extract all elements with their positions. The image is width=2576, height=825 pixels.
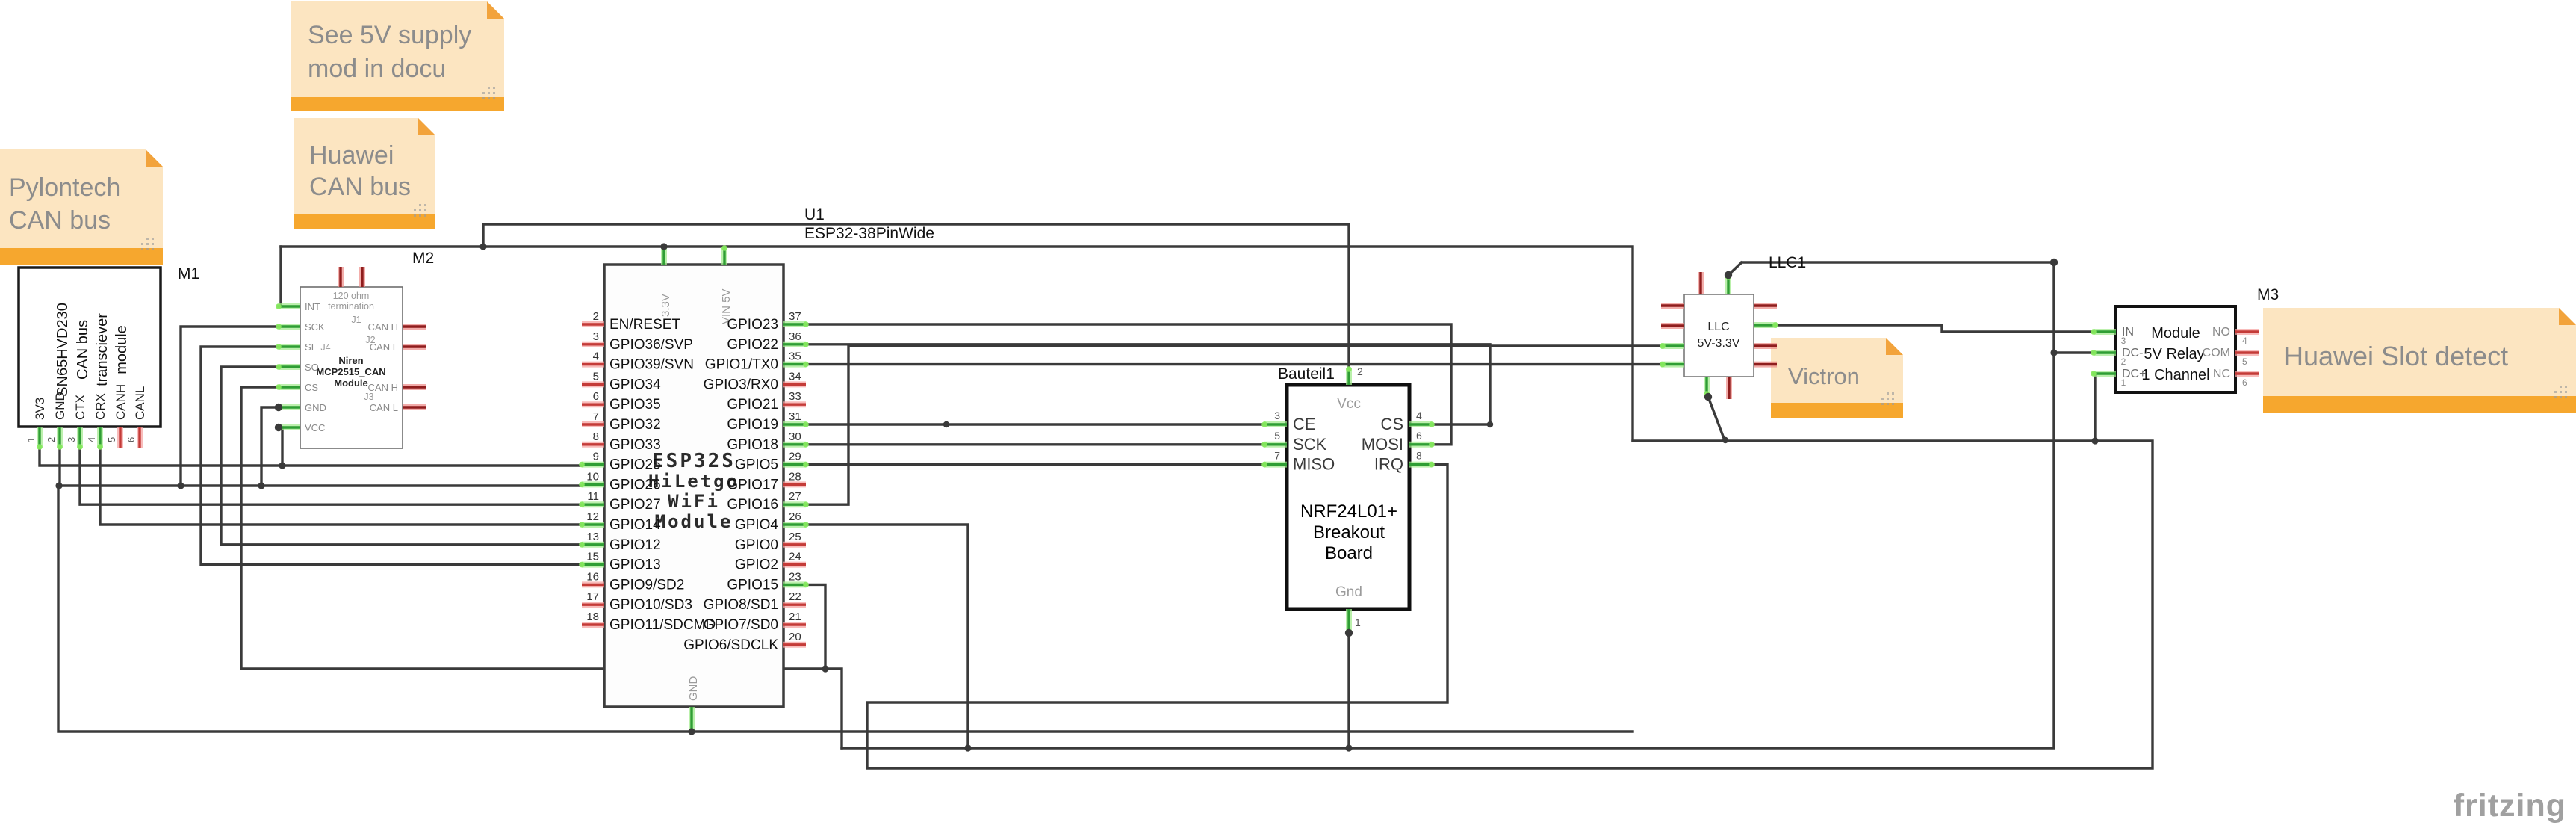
pin-tip — [37, 444, 43, 450]
note-supply[interactable]: See 5V supply mod in docu — [291, 1, 504, 111]
chip-title: WiFi — [668, 491, 720, 512]
module-m1-can-transceiver[interactable]: M1 SN65HVD230 CAN bus transciever module… — [19, 265, 199, 450]
pin-tip — [803, 342, 809, 347]
pin-label: GPIO23 — [727, 317, 778, 333]
pin-number: 34 — [789, 370, 801, 383]
grip-dot-icon — [424, 204, 426, 206]
chip-title: ESP32S — [652, 450, 736, 472]
pin-number: 7 — [593, 410, 599, 423]
pin-label: GPIO34 — [609, 377, 661, 392]
pin-number: 37 — [789, 310, 801, 323]
pin-tip — [803, 442, 809, 448]
module-body[interactable] — [1684, 294, 1754, 377]
pin-tip — [1772, 322, 1778, 328]
module-u1-esp32[interactable]: U1 ESP32-38PinWide 3.3V VIN 5V GND ESP32… — [579, 206, 934, 730]
pin-label: VCC — [305, 422, 325, 433]
grip-dot-icon — [146, 238, 149, 240]
module-ref: M3 — [2257, 286, 2279, 303]
grip-dot-icon — [2560, 386, 2562, 388]
module-title: CAN bus — [75, 320, 91, 380]
pin-label: INT — [305, 301, 320, 312]
pin-number: 1 — [25, 437, 37, 442]
grip-dot-icon — [152, 243, 154, 245]
module-title: MCP2515_CAN — [316, 366, 385, 377]
jumper-label: J1 — [351, 315, 361, 325]
grip-dot-icon — [493, 92, 495, 94]
grip-dot-icon — [493, 87, 495, 89]
pin-number: 16 — [586, 570, 599, 583]
pin-number: 26 — [789, 510, 801, 523]
pin-tip — [2091, 371, 2097, 377]
grip-dot-icon — [2565, 396, 2567, 398]
wire-llc-relay-in — [1777, 325, 2094, 332]
pin-number: 4 — [1416, 410, 1422, 421]
pin-tip — [803, 522, 809, 528]
pin-number: 22 — [789, 590, 801, 603]
grip-dot-icon — [152, 248, 154, 250]
grip-dot-icon — [1881, 398, 1884, 400]
pin-tip — [803, 501, 809, 507]
grip-dot-icon — [424, 214, 426, 217]
pin-number: 5 — [106, 437, 117, 442]
pin-tip — [276, 344, 282, 350]
note-bar — [291, 97, 504, 111]
pin-label: GPIO3/RX0 — [704, 377, 778, 392]
pin-label: GPIO21 — [727, 397, 778, 412]
grip-dot-icon — [419, 214, 421, 217]
pin-label: GPIO16 — [727, 497, 778, 513]
module-ref: LLC1 — [1769, 254, 1806, 271]
grip-dot-icon — [2565, 391, 2567, 393]
pin-number: 6 — [2242, 377, 2247, 388]
pin-label: CRX — [93, 393, 108, 420]
pin-number: 13 — [586, 531, 599, 543]
pin-label: GPIO15 — [727, 577, 778, 593]
module-title: 1 Channel — [2141, 367, 2209, 383]
module-title: Module — [334, 377, 368, 389]
pin-number: 3 — [593, 330, 599, 343]
pin-label: NO — [2212, 326, 2230, 339]
grip-dot-icon — [141, 243, 143, 245]
pin-tip — [803, 421, 809, 427]
pin-number: 9 — [593, 451, 599, 463]
note-bar — [1771, 403, 1903, 418]
grip-dot-icon — [2554, 396, 2557, 398]
termination-label: termination — [328, 301, 374, 312]
pin-tip — [803, 462, 809, 468]
pin-number: 8 — [593, 430, 599, 443]
pin-tip — [276, 324, 282, 330]
module-title: LLC — [1707, 321, 1729, 333]
pin-label: CTX — [73, 395, 87, 420]
pin-number: 6 — [593, 390, 599, 403]
module-ref: Bauteil1 — [1278, 365, 1335, 383]
pin-tip — [57, 444, 63, 450]
module-title: Module — [2151, 325, 2200, 342]
pin-tip — [276, 303, 282, 309]
wire-llc-bottom-diag — [1708, 397, 1725, 440]
grip-dot-icon — [488, 87, 490, 89]
pin-label: GPIO32 — [609, 417, 661, 433]
pin-label: DC+ — [2122, 368, 2146, 380]
pin-label: GPIO19 — [727, 417, 778, 433]
grip-dot-icon — [1892, 398, 1894, 400]
pin-tip — [97, 444, 103, 450]
pin-tip — [579, 462, 585, 468]
pin-label: SCK — [1293, 435, 1327, 454]
note-text: Huawei Slot detect — [2284, 341, 2508, 371]
pin-number: 30 — [789, 430, 801, 443]
pin-tip — [1660, 362, 1666, 368]
pin-label: GPIO27 — [609, 497, 661, 513]
module-title: module — [114, 325, 130, 374]
pin-number: 5 — [593, 370, 599, 383]
pin-tip — [1346, 366, 1352, 372]
pin-label-gnd: GND — [687, 676, 700, 702]
pin-label: GPIO4 — [735, 517, 779, 533]
pin-tip — [579, 522, 585, 528]
pin-label: GPIO18 — [727, 437, 778, 453]
pin-number: 4 — [593, 350, 599, 363]
pin-tip — [1660, 343, 1666, 349]
pin-tip — [1261, 462, 1267, 468]
pin-number: 15 — [586, 551, 599, 563]
grip-dot-icon — [414, 209, 416, 211]
chip-title: Module — [655, 511, 733, 532]
note-text: Pylontech — [9, 173, 120, 202]
module-ref: M1 — [178, 265, 199, 282]
pin-label: GPIO26 — [609, 477, 661, 492]
note-text: Huawei — [309, 141, 394, 170]
note-victron[interactable]: Victron — [1771, 338, 1903, 418]
grip-dot-icon — [2565, 386, 2567, 388]
pin-number: 28 — [789, 470, 801, 483]
grip-dot-icon — [424, 209, 426, 211]
module-title: Board — [1325, 543, 1373, 563]
pin-label: CAN L — [370, 342, 398, 353]
pin-tip — [721, 245, 727, 251]
pin-label: CANH — [114, 384, 128, 420]
pin-number: 1 — [1355, 617, 1361, 628]
note-pylontech[interactable]: Pylontech CAN bus — [0, 149, 163, 265]
pin-tip — [1261, 421, 1267, 427]
pin-number: 2 — [46, 437, 57, 442]
grip-dot-icon — [482, 97, 485, 99]
pin-number: 10 — [586, 470, 599, 483]
pin-tip — [1429, 442, 1435, 448]
pin-tip — [77, 444, 83, 450]
pin-label: GPIO10/SD3 — [609, 597, 692, 613]
pin-tip — [276, 364, 282, 370]
note-fold-icon — [1886, 338, 1903, 355]
grip-dot-icon — [488, 97, 490, 99]
wire-gpio15-loop — [806, 584, 825, 669]
pin-label-vcc: Vcc — [1337, 396, 1361, 412]
pin-label: MOSI — [1362, 435, 1403, 454]
note-text: See 5V supply — [308, 21, 471, 49]
grip-dot-icon — [1887, 392, 1889, 395]
pin-number: 5 — [2242, 356, 2247, 367]
pin-number: 29 — [789, 451, 801, 463]
pin-label: CANL — [133, 386, 147, 420]
pin-label: SO — [305, 362, 319, 373]
note-fold-icon — [418, 118, 435, 135]
pin-tip — [276, 384, 282, 390]
note-text: mod in docu — [308, 55, 446, 83]
note-fold-icon — [487, 1, 504, 19]
module-title: SN65HVD230 — [55, 303, 71, 397]
pin-label-gnd: Gnd — [1335, 584, 1362, 600]
pin-tip — [2091, 350, 2097, 356]
module-title: transciever — [94, 313, 111, 386]
module-part: ESP32-38PinWide — [804, 225, 934, 242]
note-bar — [2263, 396, 2576, 413]
pin-label: GPIO11/SDCMD — [609, 617, 716, 633]
grip-dot-icon — [1892, 403, 1894, 405]
module-title: Breakout — [1313, 522, 1385, 543]
pin-label: GND — [305, 402, 326, 413]
pin-label: CS — [1380, 415, 1403, 433]
pin-number: 12 — [586, 510, 599, 523]
grip-dot-icon — [488, 92, 490, 94]
grip-dot-icon — [419, 209, 421, 211]
pin-label: GPIO25 — [609, 457, 661, 473]
fritzing-logo: fritzing — [2454, 788, 2566, 824]
module-ref: M2 — [412, 250, 434, 267]
grip-dot-icon — [152, 238, 154, 240]
module-title: Niren — [338, 355, 363, 366]
pin-label: GPIO0 — [735, 537, 778, 553]
pin-tip — [803, 321, 809, 327]
pin-number: 4 — [86, 437, 97, 442]
pin-label: GPIO9/SD2 — [609, 577, 684, 593]
pin-number: 2 — [1357, 365, 1363, 377]
pin-label: GPIO14 — [609, 517, 661, 533]
grip-dot-icon — [146, 248, 149, 250]
grip-dot-icon — [2554, 391, 2557, 393]
pin-label: DC- — [2122, 347, 2143, 359]
note-bar — [0, 248, 163, 265]
pin-tip — [579, 482, 585, 488]
pin-number: 8 — [1416, 450, 1422, 462]
schematic-canvas: See 5V supply mod in docu Huawei CAN bus… — [0, 0, 2576, 825]
pin-number: 31 — [789, 410, 801, 423]
pin-number: 25 — [789, 531, 801, 543]
pin-number: 24 — [789, 551, 801, 563]
pin-tip — [2091, 329, 2097, 335]
wire-5v-relay-irq — [867, 441, 2153, 768]
pin-label: SI — [305, 342, 314, 353]
pin-label: GND — [53, 392, 67, 420]
pin-number: 6 — [1416, 430, 1422, 442]
pin-label: MISO — [1293, 455, 1335, 474]
pin-label: CAN H — [368, 382, 398, 393]
pin-tip — [579, 542, 585, 548]
pin-label: GPIO8/SD1 — [704, 597, 778, 613]
module-m2-mcp2515[interactable]: M2 120 ohm termination J1 J2 J4 Niren MC… — [276, 250, 434, 448]
pin-number: 18 — [586, 611, 599, 623]
pin-number: 21 — [789, 611, 801, 623]
pin-label: CAN H — [368, 321, 398, 333]
module-m3-relay[interactable]: M3 Module 5V Relay 1 Channel 3IN2DC-1DC+… — [2091, 286, 2279, 392]
pin-label-3v3: 3.3V — [659, 294, 672, 317]
wire-m1-3v3 — [40, 448, 582, 466]
pin-label: COM — [2203, 347, 2230, 359]
pin-label: GPIO35 — [609, 397, 661, 412]
pin-number: 3 — [66, 437, 77, 442]
pin-tip — [1429, 421, 1435, 427]
pin-number: 2 — [593, 310, 599, 323]
module-title: 5V Relay — [2144, 346, 2204, 362]
module-title: NRF24L01+ — [1300, 501, 1397, 522]
pin-label: CS — [305, 382, 318, 393]
pin-number: 4 — [2242, 336, 2247, 346]
pin-label: GPIO33 — [609, 437, 661, 453]
wire-m2-vcc — [279, 427, 282, 466]
grip-dot-icon — [414, 214, 416, 217]
jumper-label: J4 — [320, 342, 330, 353]
pin-number: 20 — [789, 631, 801, 643]
pin-label: GPIO12 — [609, 537, 661, 553]
note-huawei-slot[interactable]: Huawei Slot detect — [2263, 308, 2576, 413]
note-fold-icon — [146, 149, 163, 167]
pin-label: EN/RESET — [609, 317, 680, 333]
pin-label: GPIO5 — [735, 457, 778, 473]
pin-label: GPIO22 — [727, 337, 778, 353]
grip-dot-icon — [1892, 392, 1894, 395]
module-nrf24l01[interactable]: Bauteil1 2 Vcc 1 Gnd NRF24L01+ Breakout … — [1261, 365, 1435, 631]
pin-tip — [803, 362, 809, 368]
note-text: CAN bus — [9, 206, 111, 235]
pin-number: 5 — [1274, 430, 1280, 442]
grip-dot-icon — [146, 243, 149, 245]
pin-number: 6 — [125, 437, 137, 442]
pin-tip — [1429, 462, 1435, 468]
pin-number: 7 — [1274, 450, 1280, 462]
wire-m2-gnd — [261, 407, 279, 486]
pin-label: 3V3 — [33, 398, 47, 420]
pin-number: 11 — [587, 490, 599, 503]
pin-number: 17 — [586, 590, 599, 603]
pin-label: GPIO13 — [609, 557, 661, 573]
pin-label: NC — [2213, 368, 2230, 380]
grip-dot-icon — [1881, 403, 1884, 405]
pin-number: 3 — [1274, 410, 1280, 421]
wire-int-leg — [279, 247, 281, 306]
grip-dot-icon — [2560, 396, 2562, 398]
module-ref: U1 — [804, 206, 825, 223]
pin-label: GPIO6/SDCLK — [683, 637, 778, 653]
grip-dot-icon — [482, 92, 485, 94]
pin-label: GPIO36/SVP — [609, 337, 693, 353]
pin-tip — [1261, 442, 1267, 448]
pin-label: GPIO7/SD0 — [704, 617, 778, 633]
pin-label: GPIO39/SVN — [609, 357, 694, 373]
grip-dot-icon — [2560, 391, 2562, 393]
wire-m1-ctx — [80, 448, 582, 504]
pin-number: 35 — [789, 350, 801, 363]
pin-number: 23 — [789, 570, 801, 583]
grip-dot-icon — [141, 248, 143, 250]
pin-label: CAN L — [370, 402, 398, 413]
chip-title: HiLetgo — [648, 471, 739, 492]
note-fold-icon — [2559, 308, 2576, 325]
termination-label: 120 ohm — [333, 291, 370, 301]
note-text: Victron — [1788, 363, 1860, 389]
pin-number: 36 — [789, 330, 801, 343]
grip-dot-icon — [493, 97, 495, 99]
note-huawei-can[interactable]: Huawei CAN bus — [294, 118, 435, 229]
grip-dot-icon — [419, 204, 421, 206]
pin-number: 33 — [789, 390, 801, 403]
module-title: 5V-3.3V — [1698, 337, 1740, 350]
pin-label: GPIO1/TX0 — [705, 357, 778, 373]
pin-label: GPIO2 — [735, 557, 778, 573]
pin-label: SCK — [305, 321, 325, 333]
pin-tip — [579, 562, 585, 568]
pin-label: IRQ — [1374, 455, 1403, 474]
pin-number: 27 — [789, 490, 801, 503]
pin-tip — [579, 501, 585, 507]
grip-dot-icon — [1887, 398, 1889, 400]
pin-label: CE — [1293, 415, 1316, 433]
grip-dot-icon — [1887, 403, 1889, 405]
wire-m1-gnd — [60, 448, 582, 486]
pin-label: GPIO17 — [727, 477, 778, 492]
wire-gpio4-bus — [806, 525, 968, 748]
note-text: CAN bus — [309, 173, 411, 201]
pin-tip — [803, 582, 809, 588]
jumper-label: J3 — [364, 392, 373, 402]
wire-dc-plus — [2094, 374, 2095, 441]
pin-label: IN — [2122, 326, 2134, 339]
